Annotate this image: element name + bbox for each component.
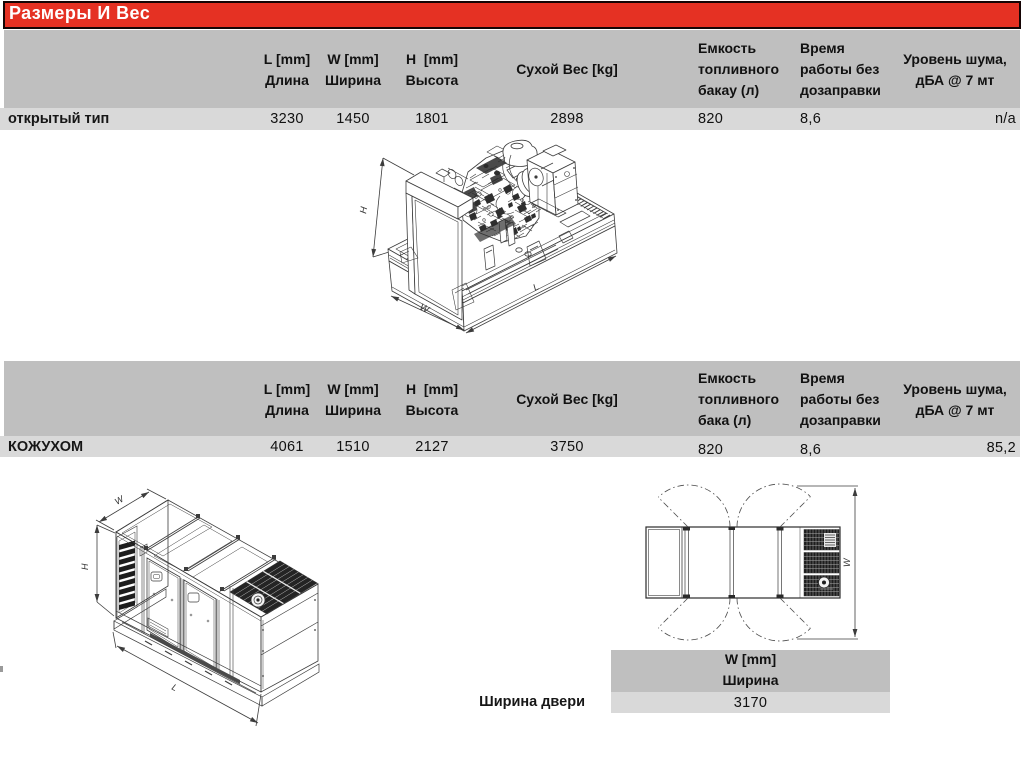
svg-text:H: H <box>80 563 90 570</box>
svg-text:W: W <box>842 557 852 567</box>
svg-text:W: W <box>113 493 127 507</box>
svg-text:L: L <box>170 682 179 693</box>
svg-text:H: H <box>358 206 370 215</box>
